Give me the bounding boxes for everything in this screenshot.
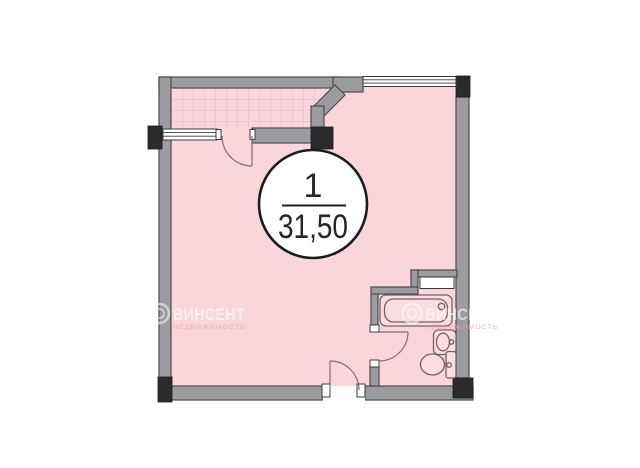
- unit-number: 1: [304, 167, 323, 205]
- sink-icon: [434, 330, 457, 355]
- unit-badge: 1 31,50: [259, 150, 367, 258]
- door-jamb: [370, 360, 379, 367]
- top-window-icon: [363, 77, 456, 87]
- structural-column-icon: [311, 127, 333, 149]
- structural-column-icon: [158, 377, 172, 402]
- left-wall: [159, 77, 171, 400]
- door-jamb: [370, 325, 379, 332]
- bathroom-top-wall: [371, 287, 418, 294]
- ventilation-shaft-icon: [420, 277, 454, 289]
- balcony-window-icon: [163, 129, 217, 140]
- watermark-tagline: НЕДВИЖИМОСТЬ: [426, 324, 499, 331]
- bathroom-step-wall-side: [411, 270, 418, 288]
- right-wall: [456, 97, 469, 378]
- door-jamb: [216, 130, 221, 140]
- structural-column-icon: [453, 378, 473, 398]
- balcony-bottom-wall: [252, 128, 313, 143]
- bottom-wall-left: [159, 386, 323, 400]
- bathroom-left-wall: [371, 294, 378, 325]
- watermark-brand: ВИНСЕНТ: [173, 305, 245, 324]
- unit-area: 31,50: [278, 208, 348, 246]
- structural-column-icon: [148, 126, 162, 149]
- bathroom-wall-stub: [370, 367, 379, 386]
- balcony-right-wall: [311, 106, 324, 128]
- structural-column-icon: [456, 76, 470, 97]
- balcony-hatch-area: [171, 88, 332, 128]
- door-jamb: [322, 384, 330, 397]
- watermark-tagline: НЕДВИЖИМОСТЬ: [173, 324, 246, 331]
- top-wall: [159, 77, 340, 88]
- watermark-brand: ВИНСЕНТ: [426, 305, 498, 324]
- floor-plan-page: 1 31,50 ВИНСЕНТ НЕДВИЖИМОСТЬ ВИНСЕНТ НЕД…: [0, 0, 640, 468]
- floor-plan: 1 31,50 ВИНСЕНТ НЕДВИЖИМОСТЬ ВИНСЕНТ НЕД…: [0, 0, 640, 468]
